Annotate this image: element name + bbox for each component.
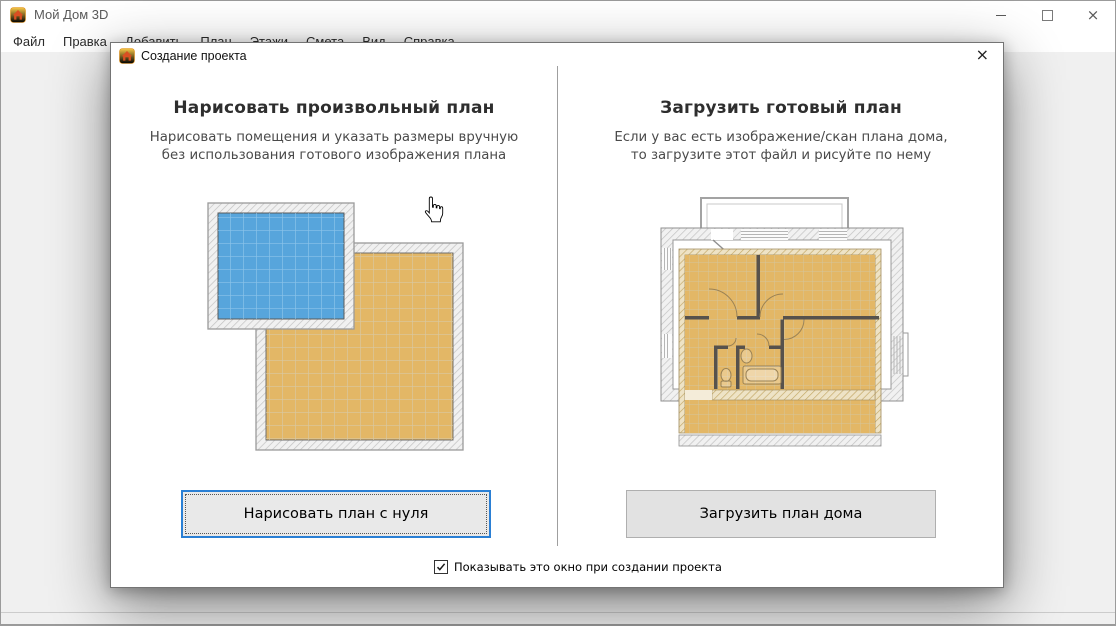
tan-overlay-plan [679, 249, 881, 433]
window-controls: × [978, 0, 1116, 30]
draw-plan-preview-image [191, 191, 491, 461]
main-titlebar: Мой Дом 3D × [0, 0, 1116, 30]
draw-plan-button-label: Нарисовать план с нуля [244, 506, 429, 522]
show-dialog-checkbox[interactable] [434, 560, 448, 574]
window-title: Мой Дом 3D [34, 7, 108, 22]
right-desc-line2: то загрузите этот файл и рисуйте по нему [558, 147, 1004, 165]
draw-plan-button[interactable]: Нарисовать план с нуля [181, 490, 491, 538]
show-dialog-checkbox-row: Показывать это окно при создании проекта [434, 560, 722, 574]
hand-cursor-icon [425, 197, 442, 222]
dialog-house-icon [119, 48, 135, 64]
close-button[interactable]: × [1070, 0, 1116, 30]
left-panel-description: Нарисовать помещения и указать размеры в… [111, 129, 557, 165]
scan-bottom-wall [679, 435, 881, 446]
balcony-outline [701, 198, 848, 230]
maximize-icon [1042, 10, 1053, 21]
menu-file[interactable]: Файл [4, 32, 54, 52]
dialog-close-button[interactable]: × [976, 47, 989, 63]
load-plan-button-label: Загрузить план дома [700, 506, 863, 522]
right-desc-line1: Если у вас есть изображение/скан плана д… [558, 129, 1004, 147]
left-desc-line2: без использования готового изображения п… [111, 147, 557, 165]
right-panel-description: Если у вас есть изображение/скан плана д… [558, 129, 1004, 165]
load-plan-button[interactable]: Загрузить план дома [626, 490, 936, 538]
app-house-icon [10, 7, 26, 23]
maximize-button[interactable] [1024, 0, 1070, 30]
right-panel-heading: Загрузить готовый план [558, 98, 1004, 118]
load-plan-preview-image [651, 186, 921, 461]
check-icon [436, 562, 446, 572]
blue-room-shape [208, 203, 354, 329]
create-project-dialog: Создание проекта × Нарисовать произвольн… [110, 42, 1004, 588]
menu-edit[interactable]: Правка [54, 32, 116, 52]
left-desc-line1: Нарисовать помещения и указать размеры в… [111, 129, 557, 147]
close-icon: × [1087, 8, 1100, 23]
minimize-button[interactable] [978, 0, 1024, 30]
minimize-icon [996, 15, 1006, 16]
left-panel-heading: Нарисовать произвольный план [111, 98, 557, 118]
status-bar [1, 612, 1115, 625]
show-dialog-checkbox-label[interactable]: Показывать это окно при создании проекта [454, 560, 722, 574]
dialog-title: Создание проекта [141, 49, 247, 63]
